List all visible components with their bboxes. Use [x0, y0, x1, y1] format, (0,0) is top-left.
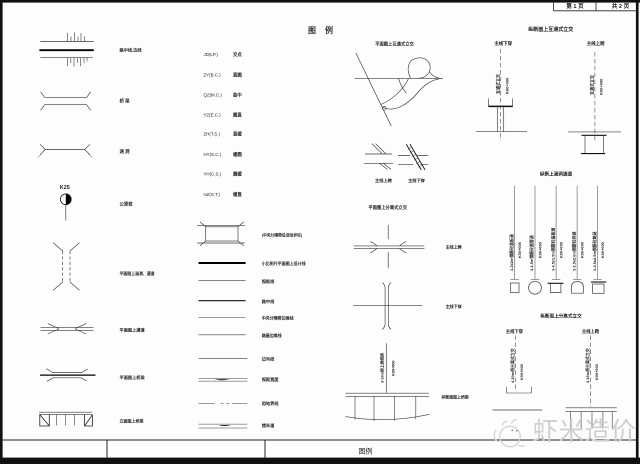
svg-text:视距宽度: 视距宽度 — [262, 376, 280, 383]
svg-text:K00+000: K00+000 — [559, 242, 564, 258]
svg-text:纵断面上分离式立交: 纵断面上分离式立交 — [539, 312, 582, 319]
svg-text:曲中: 曲中 — [233, 92, 242, 99]
svg-text:K00+000: K00+000 — [517, 242, 522, 258]
svg-text:1-1.5m钢筋砼圆管涵: 1-1.5m钢筋砼圆管涵 — [529, 235, 534, 271]
svg-text:虾米造价: 虾米造价 — [533, 418, 637, 446]
svg-text:K00+000: K00+000 — [392, 360, 396, 376]
svg-text:1-2x2m钢筋砼盖板涵: 1-2x2m钢筋砼盖板涵 — [509, 234, 514, 271]
svg-text:主线下穿: 主线下穿 — [494, 40, 512, 47]
svg-text:平面图上桥梁: 平面图上桥梁 — [120, 374, 146, 381]
svg-text:用地界线: 用地界线 — [262, 400, 280, 407]
svg-text:平面图上分离式立交: 平面图上分离式立交 — [368, 204, 407, 211]
svg-text:错车道: 错车道 — [262, 422, 275, 429]
svg-text:纵断面上互通式立交: 纵断面上互通式立交 — [528, 26, 573, 33]
svg-text:ZH(T.S.): ZH(T.S.) — [204, 132, 221, 137]
svg-text:HZ(S.T.): HZ(S.T.) — [204, 192, 221, 197]
svg-text:纵断上涵洞通道: 纵断上涵洞通道 — [539, 170, 573, 177]
svg-text:主线上跨: 主线上跨 — [446, 243, 463, 249]
svg-text:纵断面图上桥梁: 纵断面图上桥梁 — [442, 394, 469, 399]
svg-text:3-16m桥分离式立交: 3-16m桥分离式立交 — [585, 348, 590, 383]
svg-text:立面图上桥梁: 立面图上桥梁 — [120, 418, 144, 424]
svg-text:主线上跨: 主线上跨 — [587, 40, 605, 47]
svg-text:K00+000: K00+000 — [538, 242, 543, 258]
svg-text:缓圆: 缓圆 — [233, 151, 242, 158]
svg-text:4-20m桥分离式立交: 4-20m桥分离式立交 — [510, 348, 515, 383]
svg-text:主线下穿: 主线下穿 — [506, 328, 524, 335]
svg-text:主线下穿: 主线下穿 — [446, 303, 462, 309]
svg-text:K00+000: K00+000 — [580, 242, 585, 258]
svg-text:K00+000: K00+000 — [599, 78, 604, 95]
svg-text:路中线: 路中线 — [262, 298, 275, 305]
svg-text:小比例尺平面图上设计线: 小比例尺平面图上设计线 — [262, 260, 306, 266]
svg-text:桥 梁: 桥 梁 — [120, 98, 131, 105]
svg-text:3-16m桥上跨线桥: 3-16m桥上跨线桥 — [380, 353, 385, 383]
svg-text:互通式立交: 互通式立交 — [589, 75, 595, 95]
svg-text:视距线: 视距线 — [262, 278, 275, 285]
svg-text:HY(S.C.): HY(S.C.) — [204, 152, 222, 157]
svg-text:直圆: 直圆 — [233, 71, 242, 78]
svg-text:第 1 页: 第 1 页 — [565, 2, 584, 10]
svg-text:中央分隔带边缘线: 中央分隔带边缘线 — [262, 315, 294, 321]
svg-text:互通式立交: 互通式立交 — [494, 74, 500, 94]
svg-text:路中线,边线: 路中线,边线 — [120, 46, 143, 53]
svg-text:图例: 图例 — [308, 25, 342, 35]
svg-text:(中央分隔带设活动护栏): (中央分隔带设活动护栏) — [262, 233, 303, 238]
svg-text:YZ(E.C.): YZ(E.C.) — [204, 112, 222, 117]
svg-text:边沟线: 边沟线 — [261, 355, 275, 362]
svg-text:路基边缘线: 路基边缘线 — [262, 332, 282, 338]
svg-text:1-1.5x2.0m钢筋砼拱涵: 1-1.5x2.0m钢筋砼拱涵 — [571, 232, 576, 271]
svg-text:主线上跨: 主线上跨 — [582, 328, 600, 335]
svg-text:共 2 页: 共 2 页 — [612, 2, 630, 10]
svg-text:YH(C.S.): YH(C.S.) — [204, 172, 222, 177]
svg-text:主线下穿: 主线下穿 — [408, 177, 425, 184]
svg-text:缓直: 缓直 — [233, 191, 242, 198]
svg-text:公里桩: 公里桩 — [120, 201, 134, 208]
svg-text:K00+000: K00+000 — [600, 242, 605, 258]
svg-text:图例: 图例 — [359, 447, 373, 456]
svg-text:JD(LP.): JD(LP.) — [204, 52, 219, 57]
svg-text:K00+000: K00+000 — [594, 364, 599, 380]
svg-text:圆缓: 圆缓 — [233, 171, 242, 178]
svg-text:主线上跨: 主线上跨 — [375, 177, 393, 184]
svg-text:K00+000: K00+000 — [504, 77, 509, 94]
svg-text:ZY(B.C.): ZY(B.C.) — [204, 72, 222, 77]
svg-text:1-2.5x2.5m钢筋砼箱涵: 1-2.5x2.5m钢筋砼箱涵 — [592, 232, 597, 271]
svg-text:平面图上通道: 平面图上通道 — [120, 327, 146, 334]
svg-text:K00+000: K00+000 — [519, 364, 524, 380]
svg-text:直缓: 直缓 — [233, 131, 242, 138]
svg-text:圆直: 圆直 — [233, 111, 242, 118]
svg-text:QZ(M.C.): QZ(M.C.) — [204, 93, 223, 98]
svg-text:平面图上互通式立交: 平面图上互通式立交 — [375, 40, 414, 47]
svg-text:K25: K25 — [60, 185, 70, 191]
svg-text:1-4.5x1.5m钢筋砼盖板涵: 1-4.5x1.5m钢筋砼盖板涵 — [550, 228, 555, 271]
svg-text:平面图上涵洞、通道: 平面图上涵洞、通道 — [120, 271, 155, 276]
svg-text:交点: 交点 — [233, 51, 242, 58]
svg-text:涵 洞: 涵 洞 — [120, 148, 131, 155]
